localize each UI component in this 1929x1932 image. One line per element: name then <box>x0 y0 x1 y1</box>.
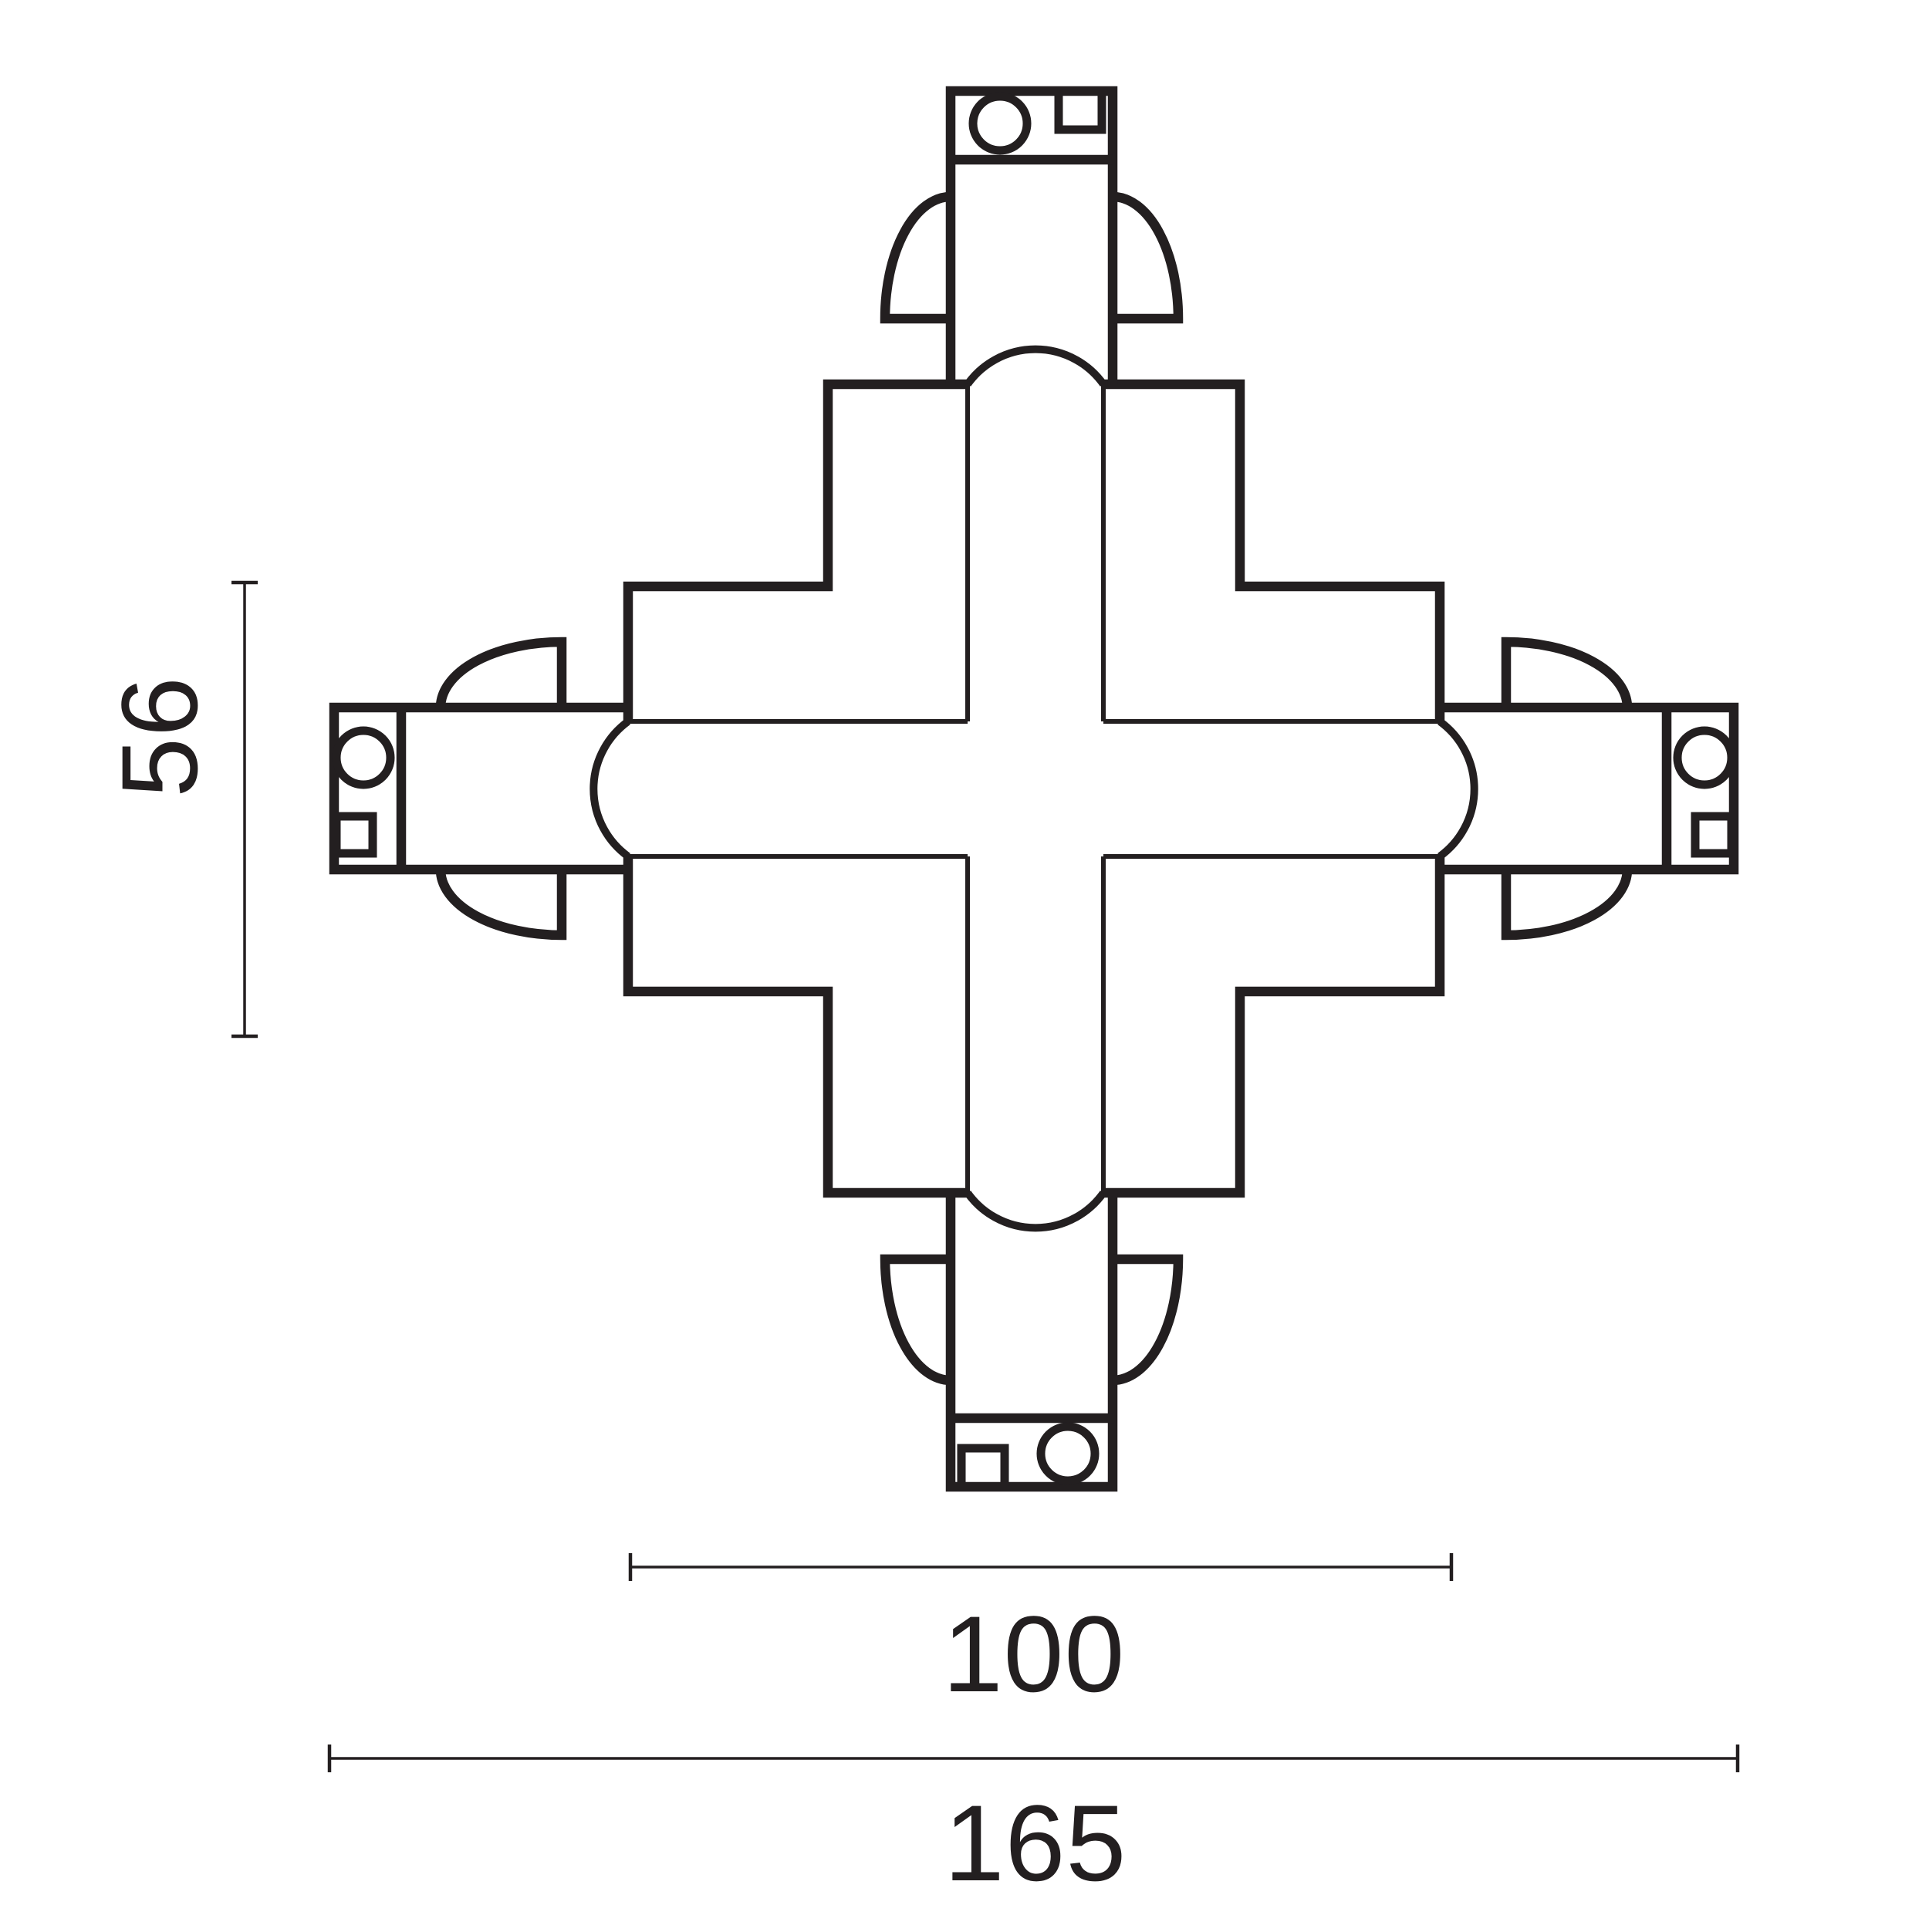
x-connector-drawing: 56 100 165 <box>0 0 1929 1932</box>
technical-drawing-page: 56 100 165 <box>0 0 1929 1932</box>
dimension-label-165: 165 <box>944 1782 1127 1903</box>
dimension-label-56: 56 <box>99 676 220 798</box>
dimension-label-100: 100 <box>943 1593 1126 1714</box>
